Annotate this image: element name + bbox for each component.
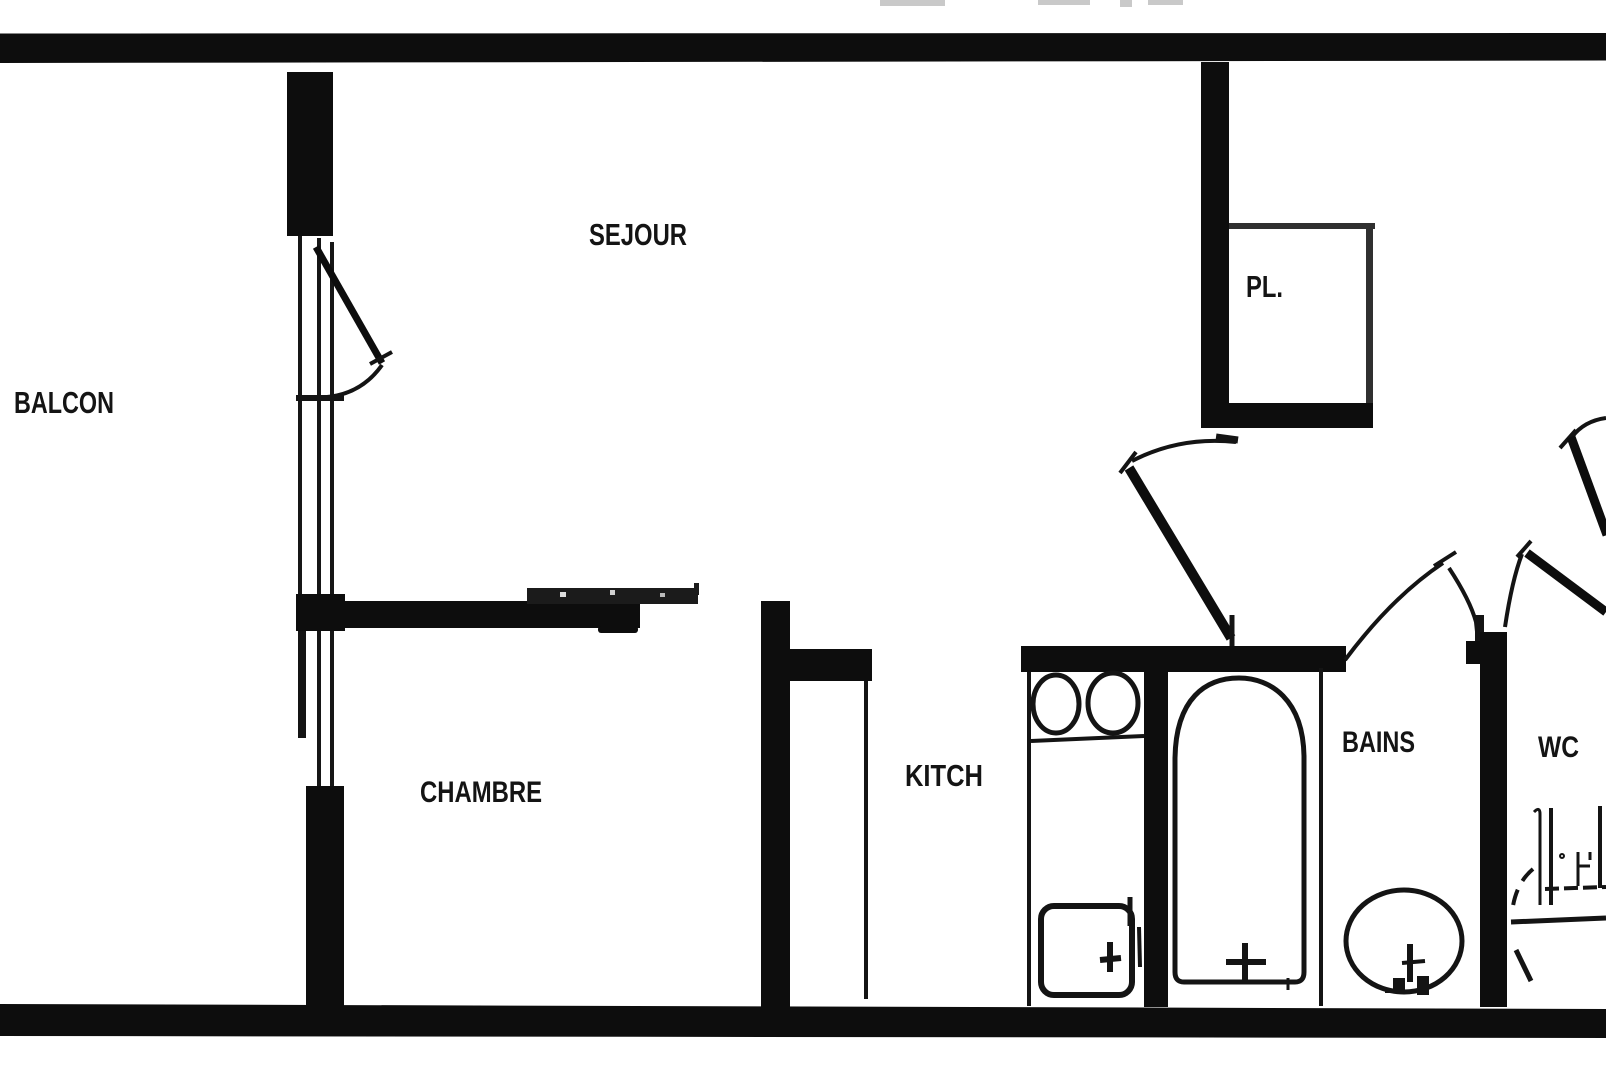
svg-text:KITCH: KITCH [905,758,983,793]
svg-text:CHAMBRE: CHAMBRE [420,776,542,809]
svg-text:SEJOUR: SEJOUR [589,217,687,252]
svg-text:PL.: PL. [1246,269,1283,304]
svg-text:WC: WC [1538,731,1579,764]
svg-text:BAINS: BAINS [1342,726,1415,759]
svg-text:BALCON: BALCON [14,385,114,420]
